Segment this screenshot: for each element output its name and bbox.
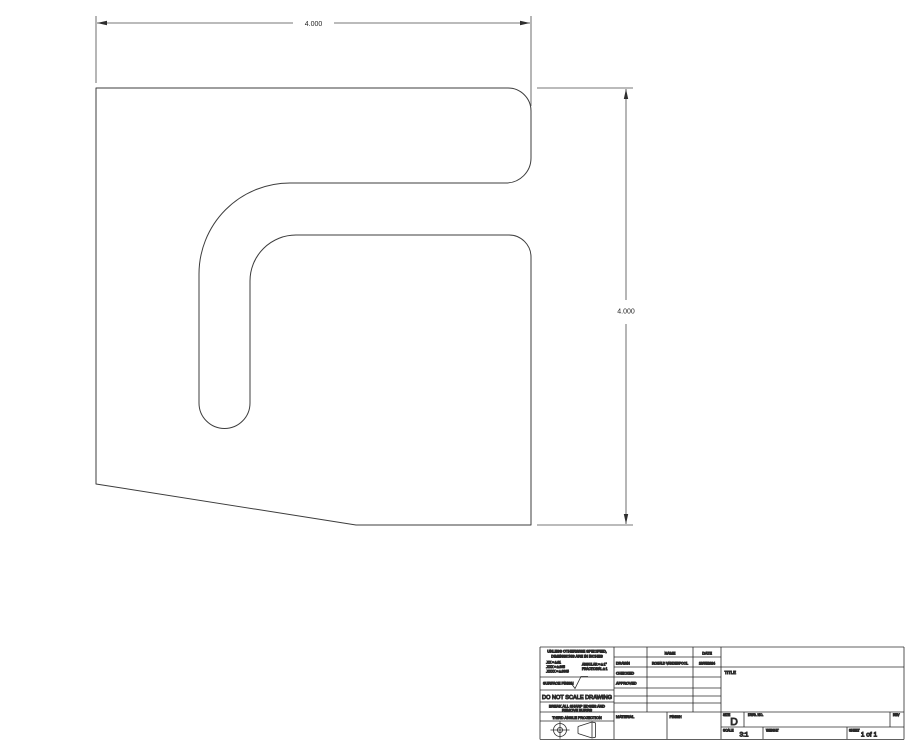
tolerance-fractional: FRACTIONAL ± 1 <box>582 667 608 671</box>
width-dimension-value: 4.000 <box>305 21 323 28</box>
arrowhead-left <box>97 21 107 25</box>
scale-label: SCALE <box>723 729 733 733</box>
tolerance-xx: .XX = ±.01 <box>546 661 561 665</box>
approved-label: APPROVED <box>616 682 637 686</box>
size-label: SIZE <box>723 713 730 717</box>
name-header: NAME <box>665 652 676 656</box>
drawn-label: DRAWN <box>616 661 630 665</box>
general-note-line2: DIMENSIONS ARE IN INCHES <box>551 655 603 659</box>
part-outline <box>96 88 531 525</box>
sheet-value: 1 of 1 <box>861 731 878 738</box>
projection-label: THIRD ANGLE PROJECTION <box>552 716 602 720</box>
height-dimension-value: 4.000 <box>617 309 635 316</box>
size-value: D <box>730 716 738 728</box>
scale-value: 3:1 <box>739 731 748 738</box>
part-view <box>96 88 531 525</box>
checked-label: CHECKED <box>616 671 634 675</box>
arrowhead-down <box>624 514 628 524</box>
break-edges-line2: REMOVE BURRS <box>562 708 592 712</box>
dwg-no-label: DWG. NO. <box>748 713 763 717</box>
drawn-name-value: RONALD VANDERPOOL <box>652 661 688 665</box>
material-label: MATERIAL <box>616 715 634 719</box>
tolerance-xxxx: .XXXX = ±.0005 <box>546 670 569 674</box>
rev-label: REV <box>893 713 900 717</box>
tolerance-angular: ANGULAR = ± 1° <box>582 663 607 667</box>
title-block: UNLESS OTHERWISE SPECIFIED, DIMENSIONS A… <box>540 647 904 739</box>
finish-label: FINISH <box>670 715 682 719</box>
surface-finish-icon <box>571 677 588 689</box>
date-header: DATE <box>702 652 712 656</box>
tolerance-xxx: .XXX = ±.005 <box>546 665 565 669</box>
drawn-date-value: 10/05/2024 <box>699 661 715 665</box>
do-not-scale-note: DO NOT SCALE DRAWING <box>542 695 612 701</box>
drawing-sheet: 4.000 4.000 <box>0 0 906 740</box>
third-angle-projection-icon <box>551 722 596 739</box>
sheet-label: SHEET <box>849 729 860 733</box>
arrowhead-up <box>624 89 628 99</box>
arrowhead-right <box>520 21 530 25</box>
surface-finish-label: SURFACE FINISH <box>543 682 574 686</box>
title-label: TITLE <box>725 670 737 675</box>
weight-label: WEIGHT <box>766 729 779 733</box>
general-note-line1: UNLESS OTHERWISE SPECIFIED, <box>547 650 607 654</box>
right-dimension: 4.000 <box>537 88 635 525</box>
